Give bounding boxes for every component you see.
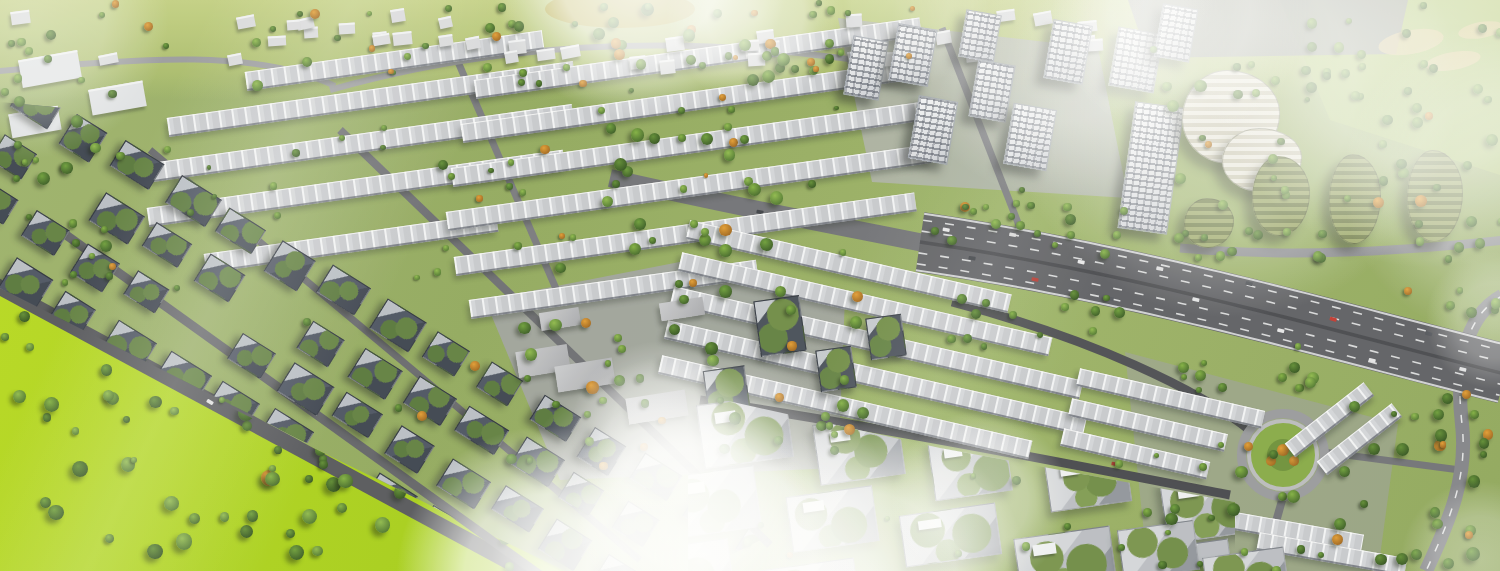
- tree: [123, 416, 131, 424]
- tree: [947, 236, 956, 245]
- orange-tree: [388, 69, 393, 74]
- tree: [826, 422, 834, 430]
- villa-roof: [287, 20, 301, 31]
- apartment-block-dark: [436, 458, 492, 509]
- tree: [1486, 134, 1498, 146]
- roof-canopy: [1033, 542, 1057, 556]
- tree: [631, 128, 645, 142]
- tree: [518, 322, 531, 335]
- tree: [1368, 443, 1380, 455]
- tree: [1433, 184, 1440, 191]
- tree: [981, 343, 988, 350]
- tree: [585, 437, 594, 446]
- orange-tree: [540, 145, 550, 155]
- tree: [1248, 61, 1255, 68]
- tree: [717, 397, 724, 404]
- tree: [606, 123, 616, 133]
- tree: [724, 123, 732, 131]
- apartment-block-dark: [403, 375, 457, 425]
- tree: [955, 550, 962, 557]
- apartment-block-dark: [454, 406, 510, 456]
- orange-tree: [476, 195, 482, 201]
- tree: [525, 348, 537, 360]
- tree: [830, 446, 839, 455]
- apartment-block-dark: [123, 270, 169, 313]
- tree: [69, 219, 77, 227]
- tree: [62, 279, 68, 285]
- tree: [1344, 195, 1351, 202]
- tree: [375, 517, 391, 533]
- tree: [1063, 203, 1071, 211]
- tree: [725, 52, 733, 60]
- tree: [821, 412, 830, 421]
- tree: [292, 149, 299, 156]
- tree: [163, 43, 169, 49]
- tree: [506, 454, 517, 465]
- orange-tree: [1465, 531, 1473, 539]
- tree: [1420, 2, 1427, 9]
- tree: [1349, 401, 1360, 412]
- tree: [90, 143, 101, 154]
- tree: [838, 49, 845, 56]
- tree: [605, 360, 611, 366]
- tree: [1150, 46, 1156, 52]
- tree: [289, 545, 304, 560]
- tree: [1359, 63, 1366, 70]
- tree: [1167, 100, 1179, 112]
- tree: [72, 239, 80, 247]
- tree: [1158, 561, 1167, 570]
- tree: [519, 69, 527, 77]
- tree: [240, 525, 253, 538]
- apartment-block-dark: [227, 333, 276, 379]
- tree: [555, 263, 566, 274]
- tree: [840, 375, 850, 385]
- tree: [19, 311, 30, 322]
- tree: [552, 401, 560, 409]
- tree: [686, 55, 696, 65]
- tree: [37, 172, 50, 185]
- tree: [1313, 251, 1323, 261]
- tree: [760, 238, 773, 251]
- orange-tree: [719, 224, 731, 236]
- tree: [33, 157, 39, 163]
- tree: [220, 512, 230, 522]
- tree: [338, 474, 352, 488]
- tree: [747, 74, 759, 86]
- apartment-block-dark: [0, 179, 18, 225]
- tree: [1442, 393, 1453, 404]
- tree: [302, 57, 312, 67]
- tree: [1466, 216, 1477, 227]
- tree: [885, 516, 890, 521]
- tree: [302, 509, 317, 524]
- orange-tree: [109, 263, 116, 270]
- tree: [1065, 214, 1076, 225]
- tree: [337, 503, 347, 513]
- apartment-block-dark: [215, 207, 266, 253]
- orange-tree: [807, 58, 815, 66]
- tree: [1301, 66, 1310, 75]
- tree: [1404, 87, 1411, 94]
- tree: [508, 159, 514, 165]
- tree: [1323, 72, 1331, 80]
- tree: [518, 79, 525, 86]
- tree: [1415, 220, 1423, 228]
- villa-roof: [338, 23, 355, 35]
- tree: [827, 6, 835, 14]
- apartment-block-light: [785, 485, 879, 552]
- tree: [614, 375, 625, 386]
- tree: [1305, 97, 1310, 102]
- garden-roof-tower: [815, 346, 856, 393]
- tree: [207, 165, 212, 170]
- apartment-block-dark: [491, 485, 544, 533]
- tree: [8, 40, 15, 47]
- tree: [1468, 475, 1480, 487]
- tree: [971, 309, 981, 319]
- tree: [514, 21, 524, 31]
- tree: [1281, 186, 1289, 194]
- tree: [1496, 28, 1500, 36]
- tree: [48, 505, 63, 520]
- tree: [1233, 63, 1241, 71]
- roof-canopy: [803, 500, 825, 512]
- apartment-block-light: [899, 503, 1002, 568]
- tree: [44, 55, 52, 63]
- tree: [1470, 410, 1479, 419]
- apartment-block-dark: [591, 554, 640, 571]
- tree: [982, 299, 990, 307]
- orange-tree: [813, 66, 819, 72]
- tree: [395, 404, 403, 412]
- tree: [739, 39, 751, 51]
- tree: [1478, 24, 1487, 33]
- apartment-block-dark: [332, 392, 383, 438]
- tree: [845, 10, 851, 16]
- tree: [549, 319, 562, 332]
- tree: [445, 5, 452, 12]
- tree: [1162, 82, 1171, 91]
- tree: [1196, 387, 1202, 393]
- orange-tree: [787, 552, 793, 558]
- villa-roof: [267, 36, 285, 47]
- villa-roof: [504, 50, 519, 64]
- tree: [1295, 343, 1301, 349]
- tree: [1272, 566, 1281, 571]
- tree: [1114, 307, 1125, 318]
- tree: [1061, 303, 1069, 311]
- orange-tree: [844, 424, 855, 435]
- tree: [164, 496, 179, 511]
- villa-roof: [390, 8, 405, 23]
- garden-roof-tower: [753, 295, 806, 357]
- tree: [147, 544, 162, 559]
- tree: [771, 47, 779, 55]
- tree: [744, 538, 752, 546]
- tree: [252, 80, 263, 91]
- tree: [1360, 500, 1368, 508]
- apartment-block-dark: [263, 240, 316, 292]
- tree: [1446, 301, 1455, 310]
- tree: [598, 107, 605, 114]
- tree: [816, 0, 822, 6]
- tree: [1454, 242, 1464, 252]
- tree: [1178, 362, 1189, 373]
- tree: [1216, 251, 1225, 260]
- tree: [1351, 91, 1360, 100]
- apartment-block-dark: [194, 253, 246, 302]
- tree: [1103, 295, 1110, 302]
- tree: [1398, 168, 1409, 179]
- tree: [434, 268, 441, 275]
- tree: [14, 141, 22, 149]
- tree: [1375, 554, 1387, 566]
- roof-canopy: [918, 518, 942, 530]
- tree: [312, 546, 323, 557]
- tree: [1307, 18, 1317, 28]
- tree: [770, 191, 783, 204]
- tree: [599, 397, 607, 405]
- tree: [713, 9, 722, 18]
- tree: [1, 88, 9, 96]
- tree: [286, 529, 295, 538]
- tree: [1416, 237, 1424, 245]
- tree: [1432, 519, 1443, 530]
- orange-tree: [586, 381, 599, 394]
- tree: [970, 208, 977, 215]
- orange-tree: [775, 393, 783, 401]
- tree: [1435, 429, 1448, 442]
- tree: [404, 53, 411, 60]
- tree: [1396, 159, 1406, 169]
- tree: [25, 47, 33, 55]
- tree: [1289, 362, 1300, 373]
- apartment-block-dark: [165, 175, 221, 227]
- tree: [1306, 82, 1317, 93]
- apartment-block-dark: [557, 472, 603, 517]
- tree: [1379, 140, 1387, 148]
- tree: [649, 133, 660, 144]
- tree: [1233, 90, 1242, 99]
- tree: [101, 364, 113, 376]
- tree: [748, 183, 761, 196]
- orange-tree: [1244, 442, 1253, 451]
- tree: [629, 88, 634, 93]
- orange-tree: [492, 32, 501, 41]
- tree: [808, 180, 816, 188]
- tree: [1175, 173, 1186, 184]
- apartment-block-dark: [347, 348, 403, 401]
- tree: [305, 475, 313, 483]
- tree: [17, 38, 25, 46]
- tree: [1, 333, 8, 340]
- tree: [1429, 64, 1438, 73]
- tree: [483, 63, 492, 72]
- apartment-block-dark: [384, 426, 434, 475]
- tree: [1089, 327, 1097, 335]
- tree: [1430, 507, 1441, 518]
- orange-tree: [144, 22, 153, 31]
- apartment-block-dark: [141, 222, 191, 268]
- tree: [1218, 383, 1227, 392]
- tree: [1201, 234, 1207, 240]
- tree: [1491, 298, 1500, 309]
- tree: [1334, 42, 1345, 53]
- apartment-block-dark: [369, 299, 427, 353]
- tree: [103, 390, 114, 401]
- apartment-block-dark: [629, 453, 682, 502]
- tree: [1475, 238, 1486, 249]
- tree: [44, 397, 59, 412]
- tree: [1218, 442, 1224, 448]
- tree: [675, 280, 683, 288]
- tree: [719, 285, 731, 297]
- tree: [1208, 515, 1214, 521]
- tree: [22, 159, 28, 165]
- tree: [1165, 513, 1177, 525]
- tree: [170, 407, 178, 415]
- tree: [699, 62, 706, 69]
- tree: [931, 227, 939, 235]
- tree: [527, 457, 534, 464]
- tree: [448, 173, 455, 180]
- orange-tree: [704, 173, 708, 177]
- villa-roof: [392, 31, 412, 46]
- villa-roof: [666, 35, 685, 51]
- tree: [690, 220, 697, 227]
- apartment-block-dark: [611, 501, 660, 548]
- tree: [71, 115, 84, 128]
- tree: [1339, 466, 1350, 477]
- tree: [520, 189, 527, 196]
- tree: [505, 562, 515, 571]
- tree: [1174, 233, 1183, 242]
- tree: [1120, 207, 1128, 215]
- tree: [269, 465, 276, 472]
- villa-roof: [659, 59, 675, 75]
- orange-tree: [852, 291, 863, 302]
- tree: [72, 461, 88, 477]
- tree: [89, 253, 94, 258]
- tree: [46, 30, 56, 40]
- tree: [242, 421, 252, 431]
- tree: [1420, 60, 1428, 68]
- orange-tree: [1440, 441, 1446, 447]
- tree: [78, 77, 84, 83]
- tree: [634, 218, 645, 229]
- tree: [438, 160, 448, 170]
- tree: [614, 158, 627, 171]
- tree: [43, 413, 52, 422]
- orange-tree: [1332, 534, 1343, 545]
- tree: [1307, 42, 1317, 52]
- tree: [680, 185, 687, 192]
- tree: [719, 244, 732, 257]
- tree: [1091, 306, 1100, 315]
- tree: [1016, 221, 1025, 230]
- tree: [758, 522, 764, 528]
- tree: [105, 534, 114, 543]
- tree: [1022, 542, 1031, 551]
- apartment-block-dark: [110, 141, 165, 191]
- tree: [1194, 80, 1206, 92]
- tree: [1411, 413, 1418, 420]
- apartment-block-light: [755, 557, 861, 571]
- tree: [593, 28, 604, 39]
- apartment-block-dark: [277, 363, 335, 417]
- villa-roof: [1033, 10, 1053, 26]
- tree: [270, 26, 276, 32]
- tree: [1052, 242, 1058, 248]
- tree: [584, 411, 591, 418]
- tree: [724, 149, 735, 160]
- tree: [570, 234, 577, 241]
- tree: [1382, 115, 1392, 125]
- villa-roof: [227, 52, 243, 65]
- tree: [991, 219, 1001, 229]
- tree: [728, 106, 734, 112]
- apartment-block-dark: [509, 436, 564, 487]
- apartment-block-dark: [89, 192, 145, 244]
- tree: [189, 513, 200, 524]
- roundabout-orange-tree: [1289, 456, 1299, 466]
- tree: [61, 162, 73, 174]
- apartment-block-dark: [296, 321, 344, 368]
- orange-tree: [1415, 195, 1427, 207]
- tree: [1143, 508, 1152, 517]
- tree: [1235, 466, 1248, 479]
- tree: [212, 194, 217, 199]
- tree: [1277, 138, 1284, 145]
- tree: [72, 427, 80, 435]
- tree: [1008, 213, 1015, 220]
- tree: [99, 12, 105, 18]
- tree: [962, 204, 969, 211]
- tree: [850, 316, 862, 328]
- tree: [837, 399, 849, 411]
- orange-tree: [689, 279, 697, 287]
- apartment-block-dark: [316, 265, 371, 316]
- tree: [414, 275, 419, 280]
- orange-tree: [417, 411, 427, 421]
- orange-tree: [658, 417, 665, 424]
- tree: [1484, 96, 1491, 103]
- tree: [1013, 200, 1020, 207]
- tree: [1195, 370, 1206, 381]
- tree: [1118, 544, 1125, 551]
- tree: [719, 444, 729, 454]
- tree: [971, 473, 976, 478]
- tree: [297, 11, 303, 17]
- tree: [809, 11, 816, 18]
- tree: [274, 446, 282, 454]
- tree: [834, 106, 838, 110]
- tree: [1457, 287, 1464, 294]
- orange-tree: [611, 38, 621, 48]
- apartment-block-dark: [422, 331, 470, 376]
- tree: [506, 183, 512, 189]
- orange-tree: [599, 462, 607, 470]
- tree: [701, 133, 713, 145]
- orange-tree: [787, 341, 796, 350]
- tree: [149, 396, 161, 408]
- orange-tree: [369, 45, 375, 51]
- tree: [14, 74, 23, 83]
- tree: [1278, 373, 1287, 382]
- tree: [705, 342, 717, 354]
- tree: [1412, 117, 1423, 128]
